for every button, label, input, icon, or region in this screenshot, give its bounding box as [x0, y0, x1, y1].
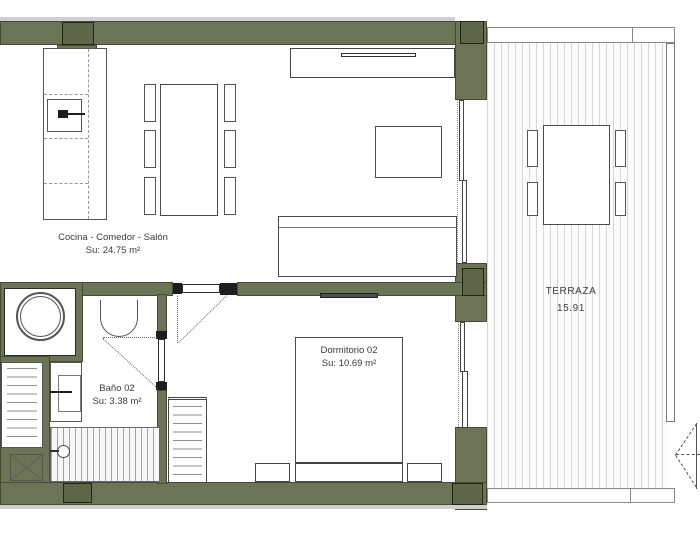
dining-chair	[224, 84, 236, 122]
living-room-name: Cocina - Comedor - Salón	[38, 231, 188, 244]
column	[452, 483, 483, 505]
terrace-railing-top	[487, 27, 675, 43]
terrace-chair	[527, 182, 538, 216]
terrace-name: TERRAZA	[496, 285, 646, 298]
bathroom-area: Su: 3.38 m²	[57, 395, 177, 408]
shower-head-stem	[50, 450, 59, 452]
kitchen-counter-divider	[44, 183, 88, 184]
nightstand	[407, 463, 442, 482]
kitchen-counter-divider	[44, 94, 88, 95]
sofa-back-line	[279, 227, 456, 228]
bathroom-door-swing	[102, 338, 157, 389]
dining-table	[160, 84, 218, 216]
bedroom-name: Dormitorio 02	[274, 344, 424, 357]
floor-plan: Cocina - Comedor - Salón Su: 24.75 m² Ba…	[0, 0, 700, 550]
kitchen-counter-divider	[44, 138, 88, 139]
living-room-label: Cocina - Comedor - Salón Su: 24.75 m²	[38, 231, 188, 257]
bathroom-name: Baño 02	[57, 382, 177, 395]
kitchen-counter	[43, 48, 107, 220]
toilet	[100, 300, 138, 337]
living-room-area: Su: 24.75 m²	[38, 244, 188, 257]
column	[62, 22, 94, 45]
terrace-railing-top-divider	[632, 27, 633, 43]
terrace-railing-right	[666, 43, 675, 422]
dining-chair	[224, 130, 236, 168]
terrace-label: TERRAZA 15.91	[496, 285, 646, 315]
bedroom-door-jamb	[220, 283, 237, 295]
terrace-decking	[487, 43, 666, 488]
linen-closet-shelves	[7, 368, 37, 443]
bedroom-door-leaf	[182, 284, 220, 293]
column	[460, 21, 484, 44]
corner-marker-diagonal	[675, 423, 697, 455]
dining-chair	[144, 177, 156, 215]
column	[63, 483, 92, 503]
corner-marker-diagonal	[675, 455, 697, 487]
bedroom-area: Su: 10.69 m²	[274, 357, 424, 370]
bathroom-label: Baño 02 Su: 3.38 m²	[57, 382, 177, 408]
terrace-chair	[615, 182, 626, 216]
dining-chair	[144, 84, 156, 122]
bathroom-door-swing	[103, 337, 157, 338]
living-window-sash	[459, 100, 464, 181]
wall-bedroom-left-upper	[157, 294, 167, 335]
kitchen-tap-line	[68, 113, 85, 115]
bathroom-door-leaf	[158, 339, 165, 382]
bedroom-door-jamb	[173, 283, 182, 294]
kitchen-tap	[58, 110, 68, 118]
living-window-sash	[462, 180, 467, 263]
column	[462, 268, 484, 296]
wardrobe-shelves	[173, 406, 202, 480]
bedroom-window-sash	[460, 322, 465, 372]
window-tick-line	[457, 100, 458, 263]
terrace-railing-bottom-divider	[630, 488, 631, 503]
bedroom-window-sash	[462, 371, 468, 428]
terrace-chair	[615, 130, 626, 167]
terrace-railing-bottom	[487, 488, 675, 503]
terrace-table	[543, 125, 610, 225]
nightstand	[255, 463, 290, 482]
bed-pillow-line	[296, 462, 402, 464]
shaft-box	[10, 454, 43, 481]
terrace-chair	[527, 130, 538, 167]
terrace-area: 15.91	[496, 302, 646, 315]
window-tick-line	[458, 322, 459, 427]
bathroom-door-hinge	[156, 331, 167, 339]
kitchen-counter-dashed-edge	[88, 49, 89, 219]
bedroom-door-swing	[177, 296, 178, 343]
corner-marker-horizontal	[676, 454, 700, 455]
bedroom-label: Dormitorio 02 Su: 10.69 m²	[274, 344, 424, 370]
sofa	[278, 216, 457, 277]
dining-chair	[224, 177, 236, 215]
wall-shadow-bottom	[0, 505, 487, 509]
corner-marker-line	[696, 423, 697, 489]
washing-machine-drum	[20, 296, 61, 337]
bedroom-door-swing	[178, 295, 227, 343]
bedroom-tv	[320, 293, 378, 298]
dining-chair	[144, 130, 156, 168]
coffee-table	[375, 126, 442, 178]
tv	[341, 53, 416, 57]
